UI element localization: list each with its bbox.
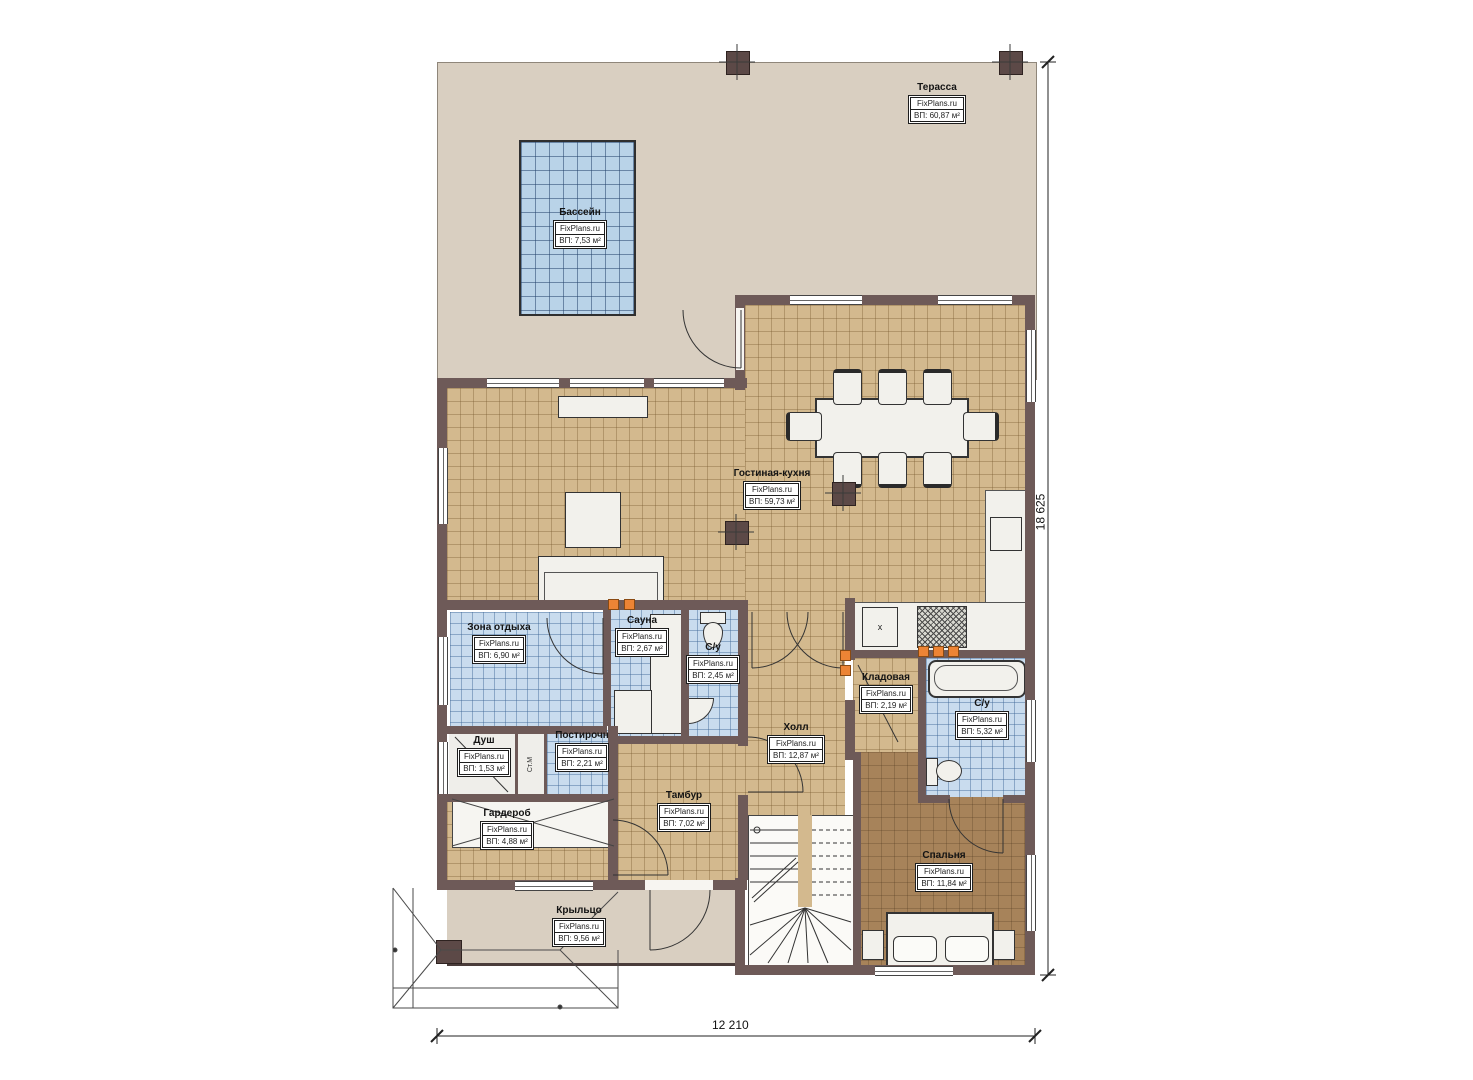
dimension-width-label: 12 210 — [712, 1018, 749, 1032]
wall-vestibule-hall — [738, 795, 748, 880]
tv-stand — [558, 396, 648, 418]
window — [438, 448, 448, 524]
area-value: ВП: 60,87 м² — [910, 110, 964, 122]
brand-tag: FixPlans.ru — [474, 637, 524, 650]
chair — [923, 369, 952, 405]
sauna-bench-low — [614, 690, 652, 734]
room-label-living: Гостиная-кухня FixPlans.ru ВП: 59,73 м² — [722, 468, 822, 510]
chair — [833, 369, 862, 405]
room-label-wc2: С/у FixPlans.ru ВП: 5,32 м² — [948, 698, 1016, 740]
area-value: ВП: 2,45 м² — [688, 670, 738, 682]
wall-shower-south — [447, 794, 615, 802]
kitchen-sink — [990, 517, 1022, 551]
room-label-sauna: Сауна FixPlans.ru ВП: 2,67 м² — [606, 615, 678, 657]
pillow — [945, 936, 989, 962]
window — [1026, 330, 1036, 402]
washing-machine: Ст.М — [517, 732, 545, 796]
area-value: ВП: 11,84 м² — [917, 878, 970, 890]
terrace-door-opening — [736, 308, 744, 370]
brand-tag: FixPlans.ru — [659, 805, 709, 818]
area-value: ВП: 12,87 м² — [769, 750, 823, 762]
chair — [786, 412, 822, 441]
room-label-vestibule: Тамбур FixPlans.ru ВП: 7,02 м² — [648, 790, 720, 832]
chair — [963, 412, 999, 441]
brand-tag: FixPlans.ru — [917, 865, 970, 878]
brand-tag: FixPlans.ru — [459, 750, 509, 763]
brand-tag: FixPlans.ru — [769, 737, 823, 750]
dimension-height-label: 18 625 — [1033, 494, 1047, 531]
washing-machine-label: Ст.М — [527, 756, 534, 771]
area-value: ВП: 2,67 м² — [617, 643, 667, 655]
kitchen-sink-marker: х — [862, 607, 898, 647]
pillow — [893, 936, 937, 962]
brand-tag: FixPlans.ru — [482, 823, 532, 836]
wall-bedroom-west — [853, 752, 861, 975]
brand-tag: FixPlans.ru — [617, 630, 667, 643]
chair — [923, 452, 952, 488]
room-label-hall: Холл FixPlans.ru ВП: 12,87 м² — [758, 722, 834, 764]
room-label-porch: Крыльцо FixPlans.ru ВП: 9,56 м² — [538, 905, 620, 947]
wall-wc2-south-a — [918, 795, 950, 803]
toilet-icon — [936, 760, 962, 782]
room-label-wardrobe: Гардероб FixPlans.ru ВП: 4,88 м² — [466, 808, 548, 850]
window — [654, 378, 724, 388]
bathtub-inner — [934, 665, 1018, 691]
window — [1026, 700, 1036, 762]
brand-tag: FixPlans.ru — [554, 920, 604, 933]
room-label-laundry: Постирочн FixPlans.ru ВП: 2,21 м² — [543, 730, 621, 772]
room-label-wc1: С/у FixPlans.ru ВП: 2,45 м² — [682, 642, 744, 684]
window — [438, 742, 448, 794]
stove-icon — [917, 606, 967, 648]
window — [1026, 855, 1036, 931]
window — [438, 637, 448, 705]
area-value: ВП: 59,73 м² — [745, 496, 799, 508]
vent-marker — [840, 650, 851, 661]
column — [726, 51, 750, 75]
porch-column — [436, 940, 462, 964]
wall-lower-left — [735, 878, 745, 975]
area-value: ВП: 4,88 м² — [482, 836, 532, 848]
room-label-terrace: Терасса FixPlans.ru ВП: 60,87 м² — [897, 82, 977, 124]
brand-tag: FixPlans.ru — [957, 713, 1007, 726]
window — [487, 378, 559, 388]
chair — [878, 452, 907, 488]
column — [999, 51, 1023, 75]
window — [790, 295, 862, 305]
room-label-storage: Кладовая FixPlans.ru ВП: 2,19 м² — [850, 672, 922, 714]
area-value: ВП: 2,21 м² — [557, 758, 607, 770]
vent-marker — [933, 646, 944, 657]
room-label-bedroom: Спальня FixPlans.ru ВП: 11,84 м² — [903, 850, 985, 892]
area-value: ВП: 7,53 м² — [555, 235, 605, 247]
area-value: ВП: 9,56 м² — [554, 933, 604, 945]
vent-marker — [608, 599, 619, 610]
sofa-seat — [544, 572, 658, 602]
wall-wc2-south-b — [1003, 795, 1025, 803]
column — [725, 521, 749, 545]
brand-tag: FixPlans.ru — [745, 483, 799, 496]
brand-tag: FixPlans.ru — [910, 97, 964, 110]
brand-tag: FixPlans.ru — [688, 657, 738, 670]
window — [875, 966, 953, 976]
room-label-rest: Зона отдыха FixPlans.ru ВП: 6,90 м² — [456, 622, 542, 664]
brand-tag: FixPlans.ru — [555, 222, 605, 235]
entry-door-opening — [645, 880, 713, 890]
window — [938, 295, 1012, 305]
wall-sauna-south — [608, 736, 748, 744]
dining-table — [815, 398, 969, 458]
coffee-table — [565, 492, 621, 548]
room-label-shower: Душ FixPlans.ru ВП: 1,53 м² — [452, 735, 516, 777]
window — [515, 881, 593, 891]
area-value: ВП: 7,02 м² — [659, 818, 709, 830]
vent-marker — [624, 599, 635, 610]
chair — [878, 369, 907, 405]
nightstand — [993, 930, 1015, 960]
stair-stringer — [798, 815, 812, 907]
nightstand — [862, 930, 884, 960]
area-value: ВП: 5,32 м² — [957, 726, 1007, 738]
room-label-pool: Бассейн FixPlans.ru ВП: 7,53 м² — [540, 207, 620, 249]
wall-living-south — [447, 600, 747, 610]
brand-tag: FixPlans.ru — [861, 687, 911, 700]
brand-tag: FixPlans.ru — [557, 745, 607, 758]
area-value: ВП: 6,90 м² — [474, 650, 524, 662]
vent-marker — [948, 646, 959, 657]
area-value: ВП: 2,19 м² — [861, 700, 911, 712]
area-value: ВП: 1,53 м² — [459, 763, 509, 775]
kitchen-x-label: х — [878, 622, 883, 632]
vent-marker — [918, 646, 929, 657]
column — [832, 482, 856, 506]
floor-plan: х Ст.М — [0, 0, 1473, 1080]
window — [570, 378, 644, 388]
